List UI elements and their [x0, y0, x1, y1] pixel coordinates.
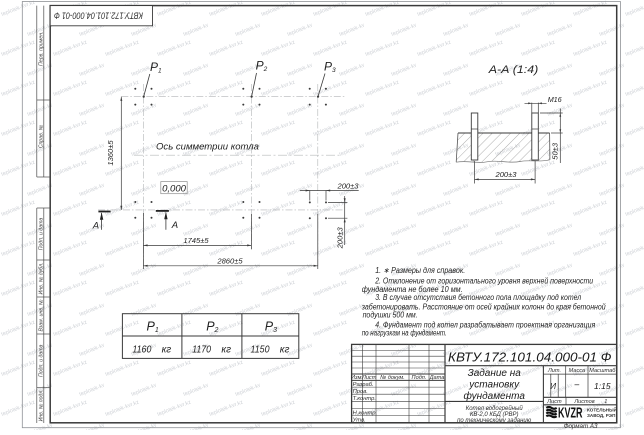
- svg-text:КОТЕЛЬНЫЙ: КОТЕЛЬНЫЙ: [587, 405, 617, 412]
- svg-text:Лист: Лист: [361, 375, 377, 381]
- svg-text:А-А (1:4): А-А (1:4): [488, 64, 539, 76]
- svg-text:Лист: Лист: [546, 399, 562, 405]
- svg-text:Котел водогрейный: Котел водогрейный: [466, 405, 524, 412]
- svg-text:Подп. и дата: Подп. и дата: [39, 218, 45, 251]
- svg-text:200±3: 200±3: [336, 182, 359, 191]
- svg-text:Т.контр.: Т.контр.: [353, 396, 376, 402]
- svg-text:подушки 500 мм.: подушки 500 мм.: [363, 310, 418, 319]
- svg-text:фундамента: фундамента: [463, 390, 525, 402]
- svg-text:Подп.: Подп.: [412, 375, 427, 381]
- svg-text:1150: 1150: [251, 344, 270, 356]
- svg-text:200±3: 200±3: [494, 170, 517, 179]
- svg-text:Лит.: Лит.: [547, 368, 561, 374]
- svg-text:кг: кг: [162, 345, 172, 356]
- svg-text:200±3: 200±3: [335, 226, 344, 249]
- svg-text:по нагрузкам на фундамент.: по нагрузкам на фундамент.: [362, 329, 447, 338]
- svg-text:Формат А3: Формат А3: [564, 423, 598, 430]
- svg-text:1170: 1170: [192, 344, 211, 356]
- svg-text:Справ. №: Справ. №: [39, 124, 45, 148]
- svg-text:кг: кг: [221, 345, 231, 356]
- svg-text:кг: кг: [280, 345, 290, 356]
- svg-text:КВТУ.172.101.04.000-01 Ф: КВТУ.172.101.04.000-01 Ф: [54, 10, 143, 21]
- svg-text:3. В случае отсутствия бетонно: 3. В случае отсутствия бетонного пола пл…: [375, 293, 581, 302]
- svg-text:Ось симметрии котла: Ось симметрии котла: [156, 142, 259, 153]
- svg-text:1745±5: 1745±5: [183, 236, 209, 245]
- svg-text:КВТУ.172.101.04.000-01 Ф: КВТУ.172.101.04.000-01 Ф: [448, 349, 612, 364]
- svg-text:Подп. и дата: Подп. и дата: [39, 344, 45, 377]
- svg-text:2860±5: 2860±5: [216, 256, 243, 265]
- svg-text:Задание на: Задание на: [468, 368, 522, 379]
- svg-text:–: –: [574, 379, 580, 389]
- svg-text:И: И: [550, 381, 557, 391]
- svg-text:Дата: Дата: [429, 375, 445, 381]
- svg-text:50±3: 50±3: [550, 142, 559, 160]
- svg-text:№ докум.: № докум.: [380, 375, 405, 381]
- svg-text:Взам. инв. №: Взам. инв. №: [39, 299, 45, 331]
- svg-text:Масштаб: Масштаб: [589, 368, 616, 374]
- svg-text:Разраб.: Разраб.: [353, 382, 374, 388]
- svg-text:1: 1: [604, 399, 607, 405]
- svg-text:Пров.: Пров.: [353, 389, 368, 395]
- svg-text:1160: 1160: [132, 344, 151, 356]
- svg-text:установку: установку: [468, 380, 520, 391]
- svg-text:KVZR: KVZR: [558, 405, 583, 421]
- svg-text:Листов: Листов: [573, 399, 594, 405]
- svg-text:ЗАВОД, РЭП: ЗАВОД, РЭП: [587, 413, 615, 418]
- svg-text:1360±5: 1360±5: [106, 140, 115, 166]
- svg-text:М16: М16: [548, 95, 562, 104]
- svg-text:А: А: [171, 220, 178, 231]
- svg-text:Масса: Масса: [569, 368, 586, 374]
- svg-text:Перв. примен.: Перв. примен.: [39, 31, 45, 65]
- svg-text:по техническому заданию: по техническому заданию: [457, 418, 532, 424]
- svg-text:2. Отклонение от горизонтально: 2. Отклонение от горизонтального уровня …: [374, 276, 593, 285]
- svg-text:0,000: 0,000: [162, 183, 186, 194]
- svg-text:1:15: 1:15: [594, 381, 611, 391]
- svg-text:Н.контр.: Н.контр.: [353, 410, 378, 416]
- svg-text:Утв.: Утв.: [352, 417, 366, 423]
- svg-text:А: А: [92, 220, 99, 231]
- svg-text:Инв. № подл.: Инв. № подл.: [39, 389, 45, 421]
- svg-text:Инв. № дубл.: Инв. № дубл.: [39, 263, 45, 295]
- svg-text:1. ∗ Размеры для справок.: 1. ∗ Размеры для справок.: [375, 266, 465, 275]
